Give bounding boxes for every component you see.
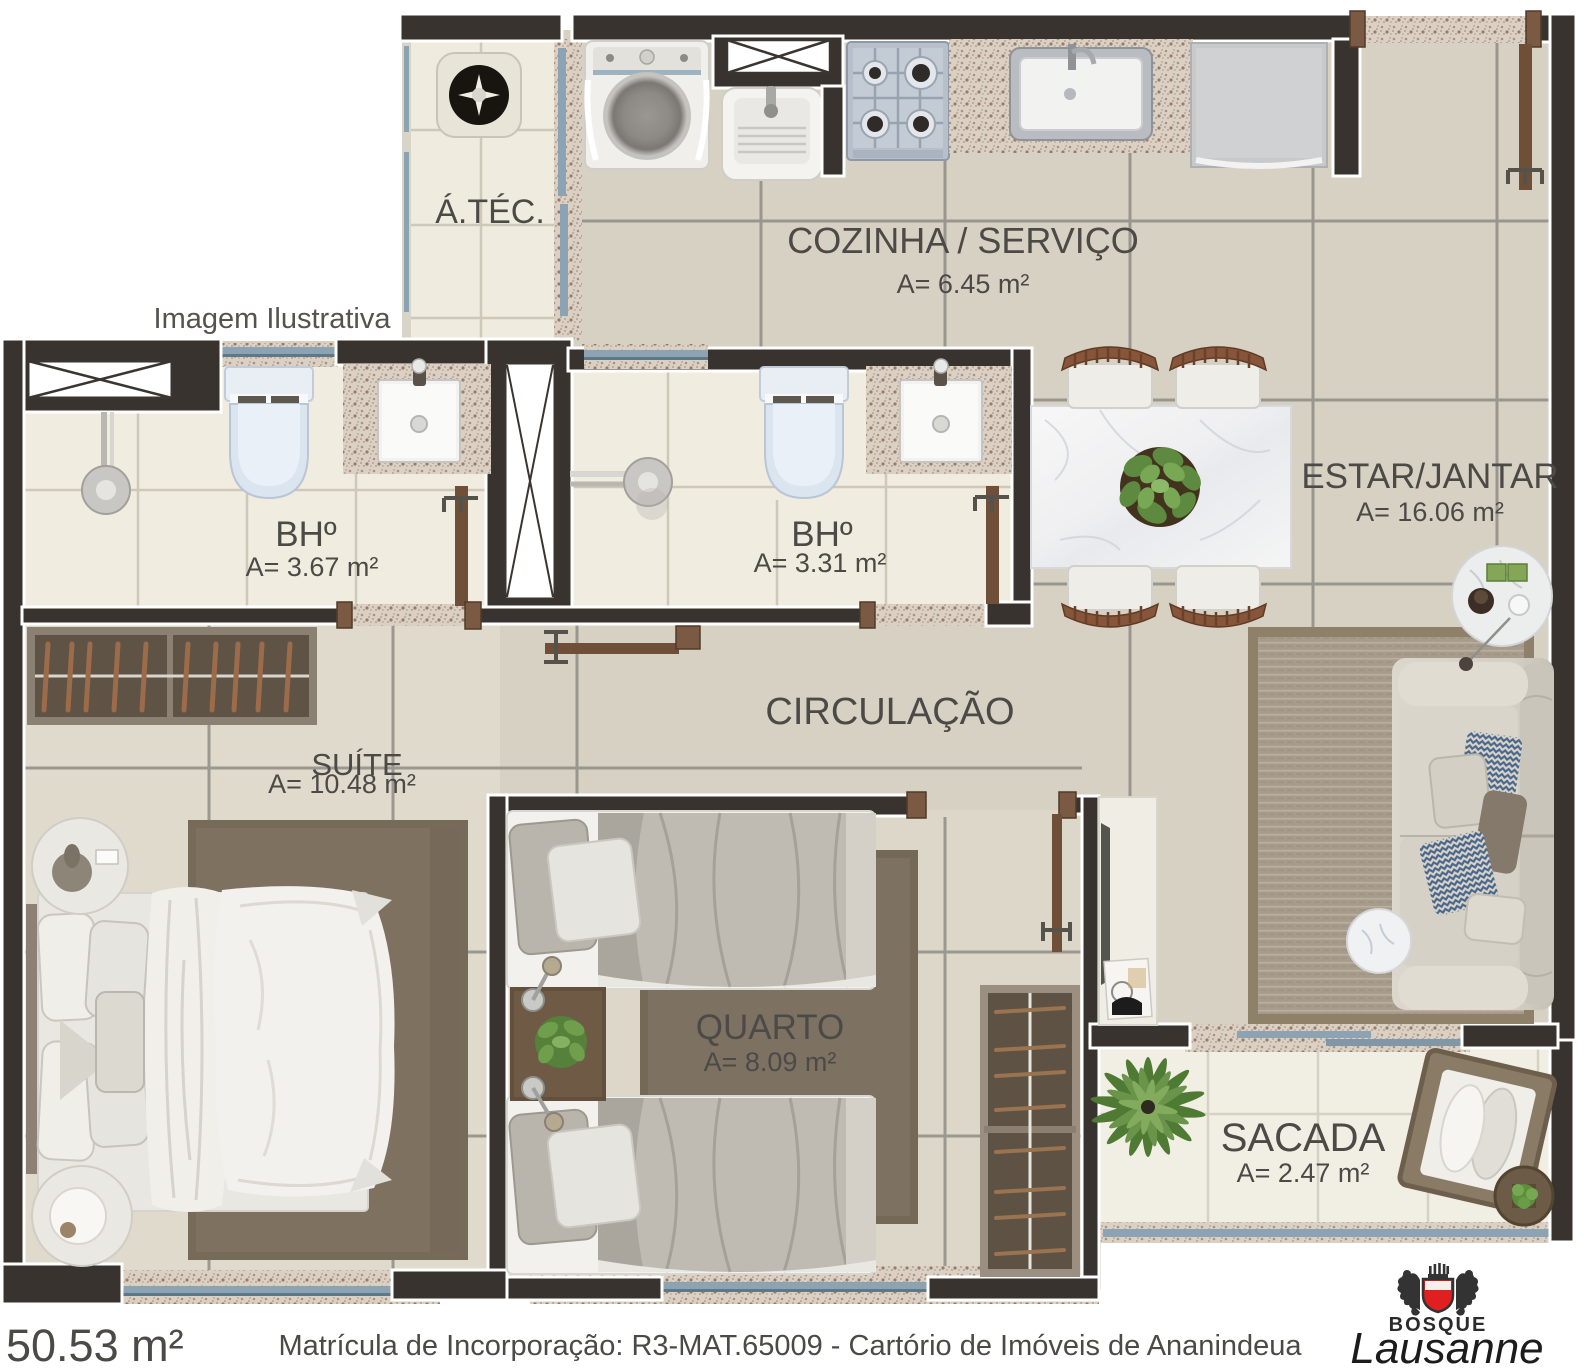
svg-text:COZINHA / SERVIÇO: COZINHA / SERVIÇO [787,220,1138,261]
svg-text:Á.TÉC.: Á.TÉC. [435,193,545,231]
svg-text:ESTAR/JANTAR: ESTAR/JANTAR [1301,457,1558,496]
svg-text:CIRCULAÇÃO: CIRCULAÇÃO [765,690,1014,733]
svg-text:A= 3.31 m²: A= 3.31 m² [754,548,887,578]
svg-text:Imagem Ilustrativa: Imagem Ilustrativa [154,303,392,335]
svg-text:BHº: BHº [275,515,337,554]
svg-text:QUARTO: QUARTO [696,1008,844,1047]
svg-text:A= 6.45 m²: A= 6.45 m² [897,269,1030,299]
svg-text:A= 8.09 m²: A= 8.09 m² [704,1047,837,1077]
svg-text:Lausanne: Lausanne [1350,1324,1543,1370]
svg-text:A= 10.48 m²: A= 10.48 m² [268,769,416,799]
svg-text:A= 16.06 m²: A= 16.06 m² [1356,497,1504,527]
svg-text:50.53 m²: 50.53 m² [6,1320,184,1370]
svg-text:Matrícula de Incorporação: R3-: Matrícula de Incorporação: R3-MAT.65009 … [278,1330,1302,1362]
svg-text:SACADA: SACADA [1221,1116,1386,1160]
svg-text:A= 3.67 m²: A= 3.67 m² [246,552,379,582]
svg-text:A= 2.47 m²: A= 2.47 m² [1237,1158,1370,1188]
